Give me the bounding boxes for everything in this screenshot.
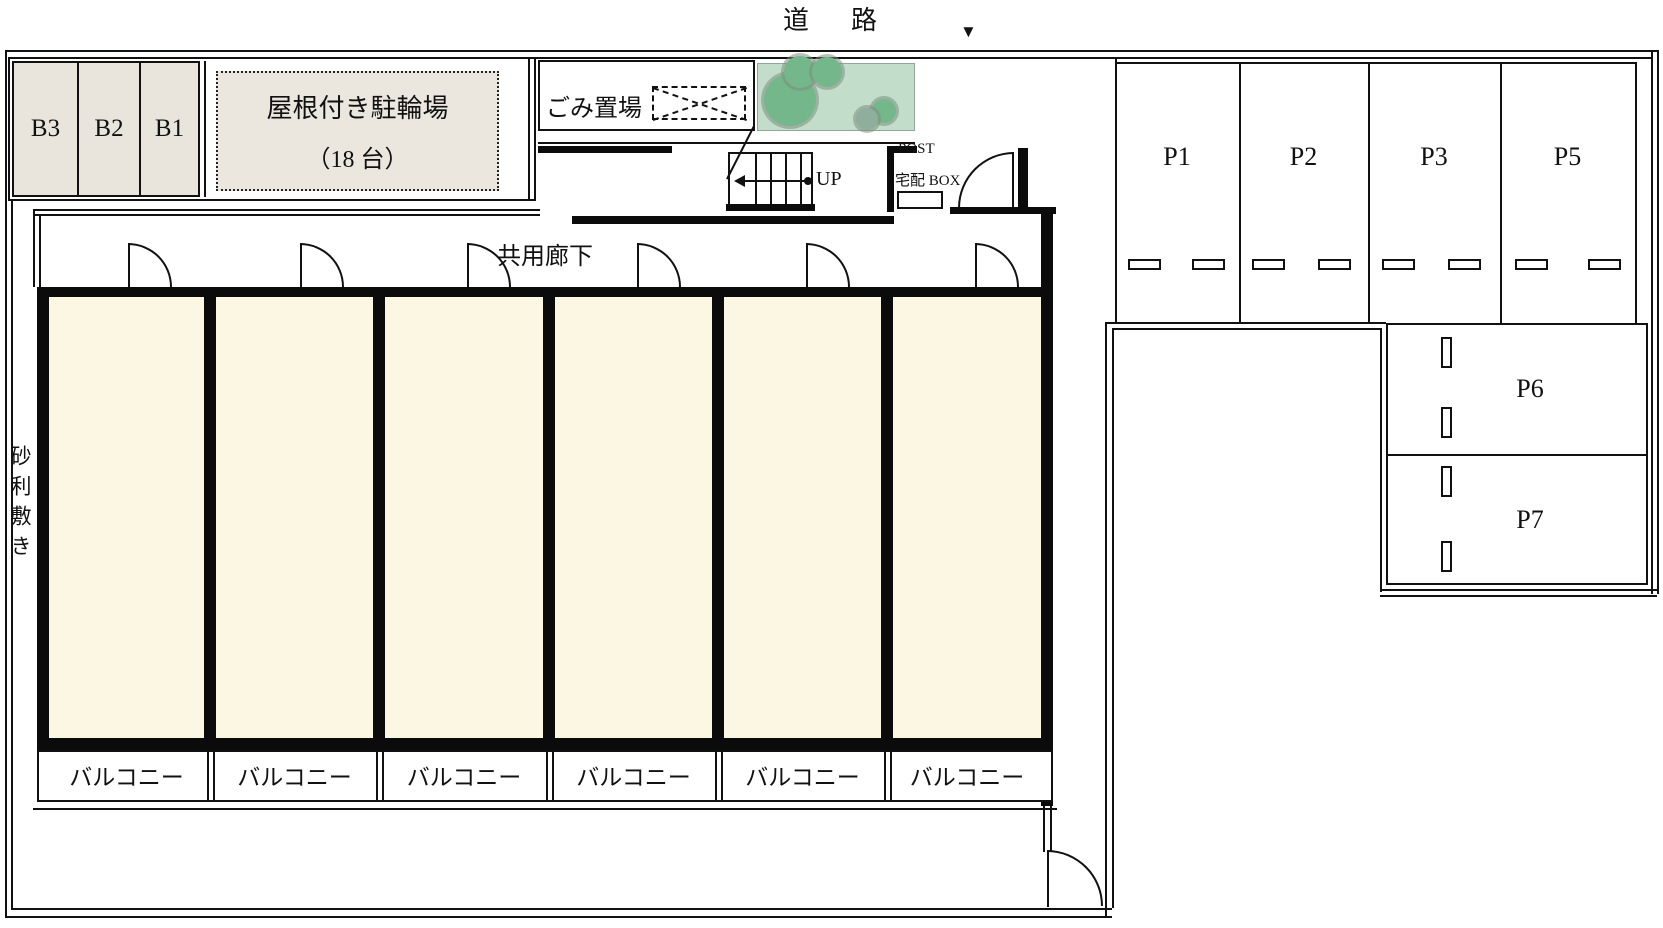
gate-door-arc [1047, 850, 1103, 906]
wall [37, 287, 1053, 297]
wheel-stop [1192, 259, 1225, 270]
unit-door-arc [637, 243, 681, 287]
bike-cell-b2: B2 [77, 61, 141, 197]
bike-cell-label: B2 [94, 115, 123, 143]
unit-door-arc [806, 243, 850, 287]
bike-cell-b3: B3 [12, 61, 79, 197]
boundary-line [5, 916, 1112, 918]
boundary-line [11, 908, 1112, 910]
bike-cell-label: B3 [31, 115, 60, 143]
wall [538, 146, 672, 153]
parking-line [1368, 62, 1370, 323]
unit-door-arc [128, 243, 172, 287]
divider-line [204, 61, 206, 197]
unit-room [385, 297, 543, 738]
corridor-line [33, 214, 540, 216]
balcony-divider [715, 750, 717, 802]
unit-room [216, 297, 373, 738]
wall [37, 738, 1053, 750]
delivery-box-label: 宅配 BOX [895, 169, 960, 190]
boundary-line [1651, 50, 1653, 594]
wheel-stop [1318, 259, 1351, 270]
balcony-divider [890, 750, 892, 802]
wall [572, 216, 894, 224]
bicycle-shed: 屋根付き駐輪場 （18 台） [216, 71, 499, 191]
corridor-label: 共用廊下 [497, 236, 593, 271]
entrance-column [1018, 148, 1028, 210]
balcony-divider [207, 750, 209, 802]
balcony-label: バルコニー [49, 758, 204, 792]
boundary-line [1105, 322, 1107, 918]
corridor-line [39, 214, 41, 287]
parking-line [1386, 454, 1648, 456]
wheel-stop [1441, 337, 1452, 368]
tree-icon [856, 108, 878, 130]
wall [37, 297, 49, 738]
bike-cell-b1: B1 [139, 61, 200, 197]
balcony-label: バルコニー [555, 758, 712, 792]
boundary-line [1112, 328, 1380, 330]
boundary-line [1380, 595, 1657, 597]
parking-stall-label: P2 [1239, 142, 1368, 172]
wheel-stop [1448, 259, 1481, 270]
wheel-stop [1588, 259, 1621, 270]
unit-room [555, 297, 712, 738]
boundary-line [1657, 50, 1659, 594]
balcony-label: バルコニー [385, 758, 543, 792]
balcony-divider [884, 750, 886, 802]
wall [204, 297, 216, 738]
parking-stall-label: P1 [1115, 142, 1239, 172]
wheel-stop [1441, 541, 1452, 572]
balcony-divider [376, 750, 378, 802]
balcony-outer-line [33, 808, 1057, 810]
stair-arrow-dot [804, 177, 812, 185]
unit-room [49, 297, 204, 738]
unit-door-arc [300, 243, 344, 287]
side-stall-label: P7 [1450, 505, 1610, 535]
site-plan: 道 路 ▼ B3 B2 B1 屋根付き駐輪場 （18 台） ごみ置場 [0, 0, 1663, 928]
parking-line [1115, 57, 1117, 323]
road-label: 道 路 [783, 0, 885, 37]
boundary-line [1380, 328, 1382, 592]
parking-stall-label: P5 [1500, 142, 1635, 172]
balcony-divider [721, 750, 723, 802]
gravel-label: 砂利敷き [9, 425, 35, 585]
wall [950, 207, 1056, 214]
parking-line [1239, 62, 1241, 323]
delivery-box [897, 191, 943, 209]
bicycle-shed-capacity: （18 台） [307, 139, 409, 174]
parking-line [1500, 62, 1502, 323]
boundary-line [1112, 328, 1114, 908]
stair-arrow-head [734, 175, 745, 187]
unit-room [724, 297, 881, 738]
balcony-label: バルコニー [893, 758, 1041, 792]
corridor-line [33, 209, 35, 287]
boundary-line [1380, 589, 1657, 591]
boundary-line [1105, 322, 1386, 324]
wall [1041, 214, 1053, 806]
gate-fence-line [1043, 806, 1045, 852]
gate-fence-line [1050, 806, 1052, 852]
divider-line [528, 59, 530, 199]
stairs-up-label: UP [816, 168, 842, 191]
wheel-stop [1382, 259, 1415, 270]
side-stall-label: P6 [1450, 374, 1610, 404]
parking-line [1635, 62, 1637, 323]
wheel-stop [1441, 407, 1452, 438]
parking-stall-label: P3 [1368, 142, 1500, 172]
wall [373, 297, 385, 738]
unit-door-arc [975, 243, 1019, 287]
wheel-stop [1252, 259, 1285, 270]
parking-line [1115, 62, 1637, 64]
balcony-divider [546, 750, 548, 802]
balcony-divider [382, 750, 384, 802]
post-label: POST [898, 141, 935, 158]
balcony-divider [552, 750, 554, 802]
wall [543, 297, 555, 738]
balcony-label: バルコニー [216, 758, 373, 792]
wall-line [538, 142, 915, 144]
corridor-line [33, 209, 540, 211]
garbage-label: ごみ置場 [546, 88, 642, 123]
wall [712, 297, 724, 738]
entrance-arrow-icon: ▼ [960, 22, 977, 42]
balcony-label: バルコニー [724, 758, 881, 792]
wall [881, 297, 893, 738]
bicycle-shed-title: 屋根付き駐輪場 [266, 88, 448, 125]
entrance-door-arc [958, 152, 1014, 208]
wheel-stop [1128, 259, 1161, 270]
stair-direction-arrow [742, 180, 808, 182]
boundary-line [5, 50, 1657, 52]
wall [726, 204, 815, 211]
unit-room [893, 297, 1041, 738]
balcony-divider [213, 750, 215, 802]
bike-cell-label: B1 [155, 115, 184, 143]
wall [887, 146, 894, 212]
tree-icon [812, 57, 842, 87]
entrance-door-leaf [1012, 152, 1014, 208]
wheel-stop [1441, 466, 1452, 497]
wheel-stop [1515, 259, 1548, 270]
